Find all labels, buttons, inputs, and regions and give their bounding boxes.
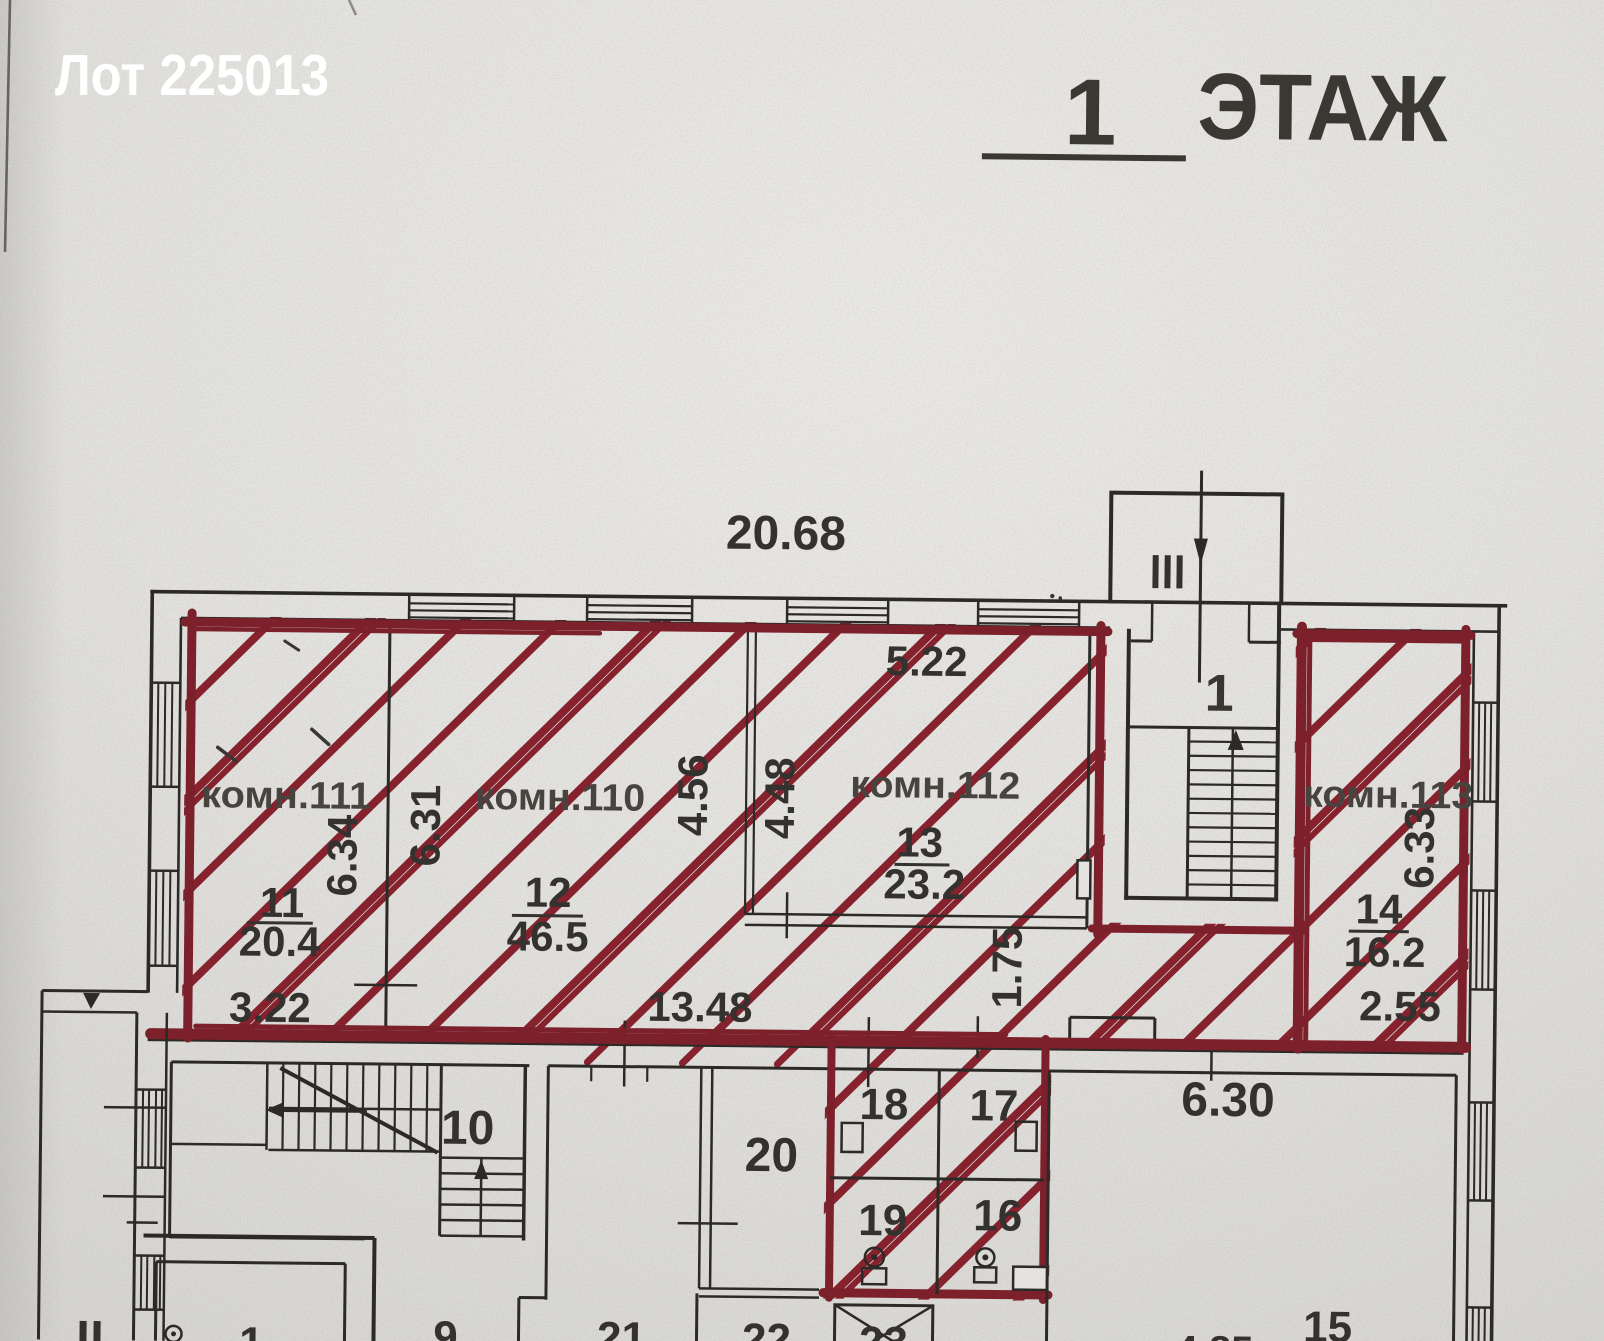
- svg-text:комн.111: комн.111: [201, 774, 371, 818]
- svg-text:ЭТАЖ: ЭТАЖ: [1197, 54, 1449, 162]
- svg-text:12: 12: [525, 869, 572, 916]
- svg-text:17: 17: [969, 1081, 1018, 1131]
- svg-text:6.30: 6.30: [1181, 1073, 1275, 1127]
- svg-text:1: 1: [1064, 59, 1117, 165]
- svg-text:20: 20: [744, 1129, 798, 1183]
- svg-text:4.85: 4.85: [1175, 1328, 1253, 1341]
- svg-text:23.2: 23.2: [883, 860, 965, 908]
- svg-text:4.48: 4.48: [756, 757, 804, 839]
- svg-text:6.33: 6.33: [1395, 807, 1443, 889]
- svg-text:6.34: 6.34: [318, 814, 366, 897]
- svg-text:20.4: 20.4: [239, 918, 322, 966]
- svg-text:21: 21: [597, 1313, 646, 1341]
- svg-text:22: 22: [742, 1315, 791, 1341]
- svg-text:19: 19: [858, 1196, 907, 1246]
- svg-text:15: 15: [1303, 1303, 1352, 1341]
- svg-text:5.22: 5.22: [885, 637, 967, 685]
- svg-text:4.56: 4.56: [669, 754, 717, 836]
- svg-text:2.55: 2.55: [1359, 982, 1441, 1030]
- svg-text:3.22: 3.22: [229, 983, 311, 1031]
- svg-text:Лот 225013: Лот 225013: [55, 43, 329, 108]
- svg-text:13: 13: [896, 818, 943, 865]
- svg-text:20.68: 20.68: [726, 507, 847, 561]
- svg-text:10: 10: [441, 1102, 495, 1156]
- svg-text:16.2: 16.2: [1343, 928, 1425, 976]
- svg-text:комн.112: комн.112: [850, 764, 1020, 808]
- svg-text:16: 16: [973, 1191, 1022, 1241]
- svg-text:1.75: 1.75: [983, 926, 1031, 1008]
- svg-text:46.5: 46.5: [507, 912, 589, 960]
- svg-text:14: 14: [1355, 885, 1403, 932]
- svg-text:комн.113: комн.113: [1303, 774, 1473, 818]
- svg-text:9: 9: [433, 1313, 458, 1341]
- svg-text:18: 18: [859, 1080, 908, 1130]
- svg-text:6.31: 6.31: [401, 784, 449, 866]
- svg-text:13.48: 13.48: [647, 983, 753, 1031]
- svg-text:1: 1: [239, 1319, 264, 1341]
- svg-text:23: 23: [859, 1318, 908, 1341]
- svg-text:комн.110: комн.110: [475, 776, 645, 820]
- svg-text:1: 1: [1205, 665, 1235, 723]
